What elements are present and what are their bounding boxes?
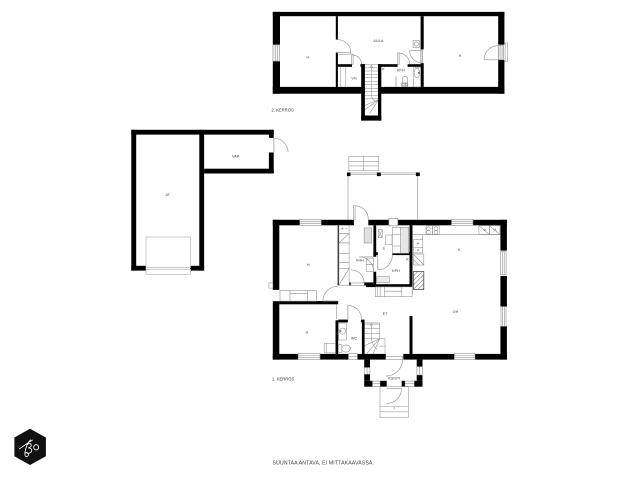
- svg-text:VAR: VAR: [232, 155, 240, 159]
- svg-text:AULA: AULA: [373, 39, 383, 43]
- svg-text:1. KERROS: 1. KERROS: [272, 377, 295, 382]
- svg-text:KPH: KPH: [392, 269, 400, 273]
- svg-text:SUUNTAA ANTAVA, EI MITTAKAAVAS: SUUNTAA ANTAVA, EI MITTAKAAVASSA.: [273, 460, 375, 466]
- svg-text:KUISTI: KUISTI: [388, 377, 400, 381]
- svg-text:2. KERROS: 2. KERROS: [272, 107, 295, 112]
- svg-text:H: H: [459, 54, 462, 58]
- svg-text:WC: WC: [351, 336, 358, 340]
- svg-text:ET: ET: [383, 312, 389, 316]
- svg-text:H: H: [306, 331, 309, 335]
- svg-text:H: H: [306, 55, 309, 59]
- svg-text:H: H: [307, 263, 310, 267]
- svg-text:KHH: KHH: [356, 258, 364, 262]
- svg-text:OH: OH: [453, 310, 459, 314]
- svg-text:AT: AT: [166, 193, 171, 197]
- svg-text:VH: VH: [351, 77, 357, 81]
- svg-text:KPH: KPH: [397, 69, 405, 73]
